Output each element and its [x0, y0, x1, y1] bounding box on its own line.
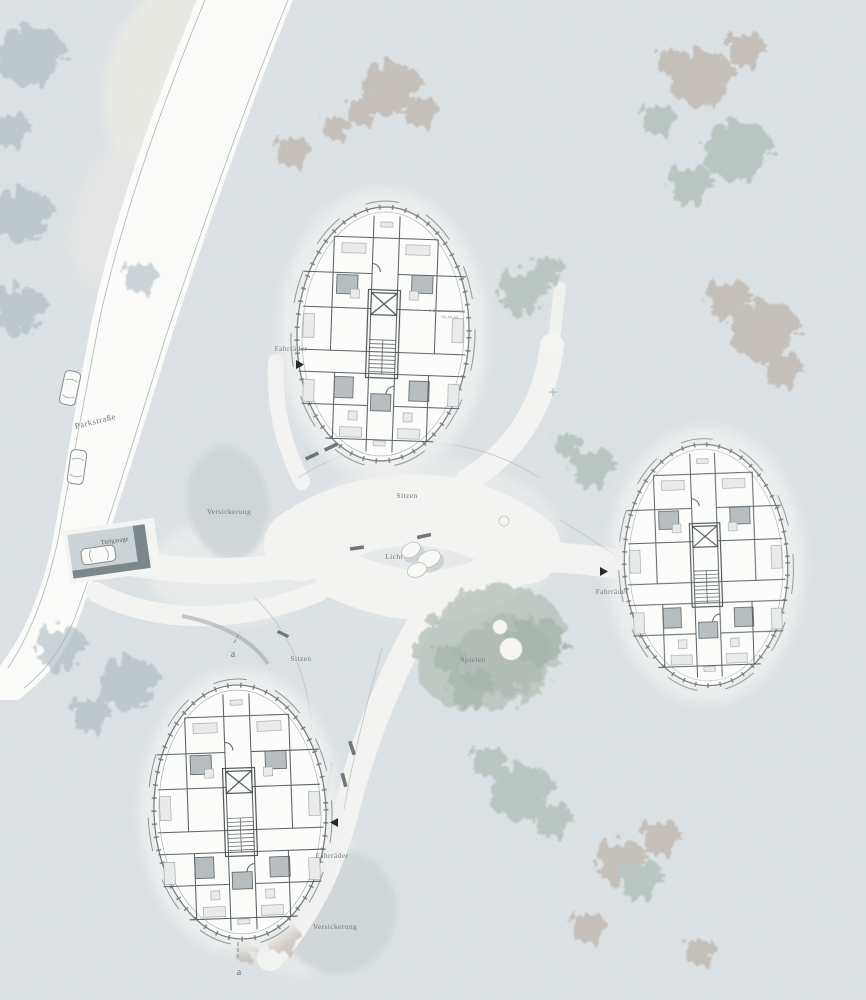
label-fahrraeder-south: Fahrräder — [316, 851, 349, 860]
site-plan-svg: Tiefgarage a a Parkstraße Versickerung V… — [0, 0, 866, 1000]
label-sitzen-west: Sitzen — [290, 654, 311, 663]
label-versickerung-nw: Versickerung — [207, 507, 251, 516]
section-letter-top: a — [231, 649, 236, 660]
site-plan: Tiefgarage a a Parkstraße Versickerung V… — [0, 0, 866, 1000]
label-fahrraeder-east: Fahrräder — [596, 587, 629, 596]
label-sitzen-center: Sitzen — [396, 491, 417, 500]
play-sphere-large — [500, 638, 523, 661]
label-versickerung-south: Versickerung — [313, 922, 357, 931]
label-fahrraeder-north: Fahrräder — [275, 344, 308, 353]
label-licht: Licht — [385, 552, 403, 561]
play-sphere-small — [493, 620, 508, 635]
section-letter-bottom: a — [237, 967, 242, 978]
label-apartment-type: 4-Zimmerwohnung — [429, 308, 466, 313]
boulder — [499, 516, 509, 526]
label-spielen: Spielen — [460, 655, 485, 664]
